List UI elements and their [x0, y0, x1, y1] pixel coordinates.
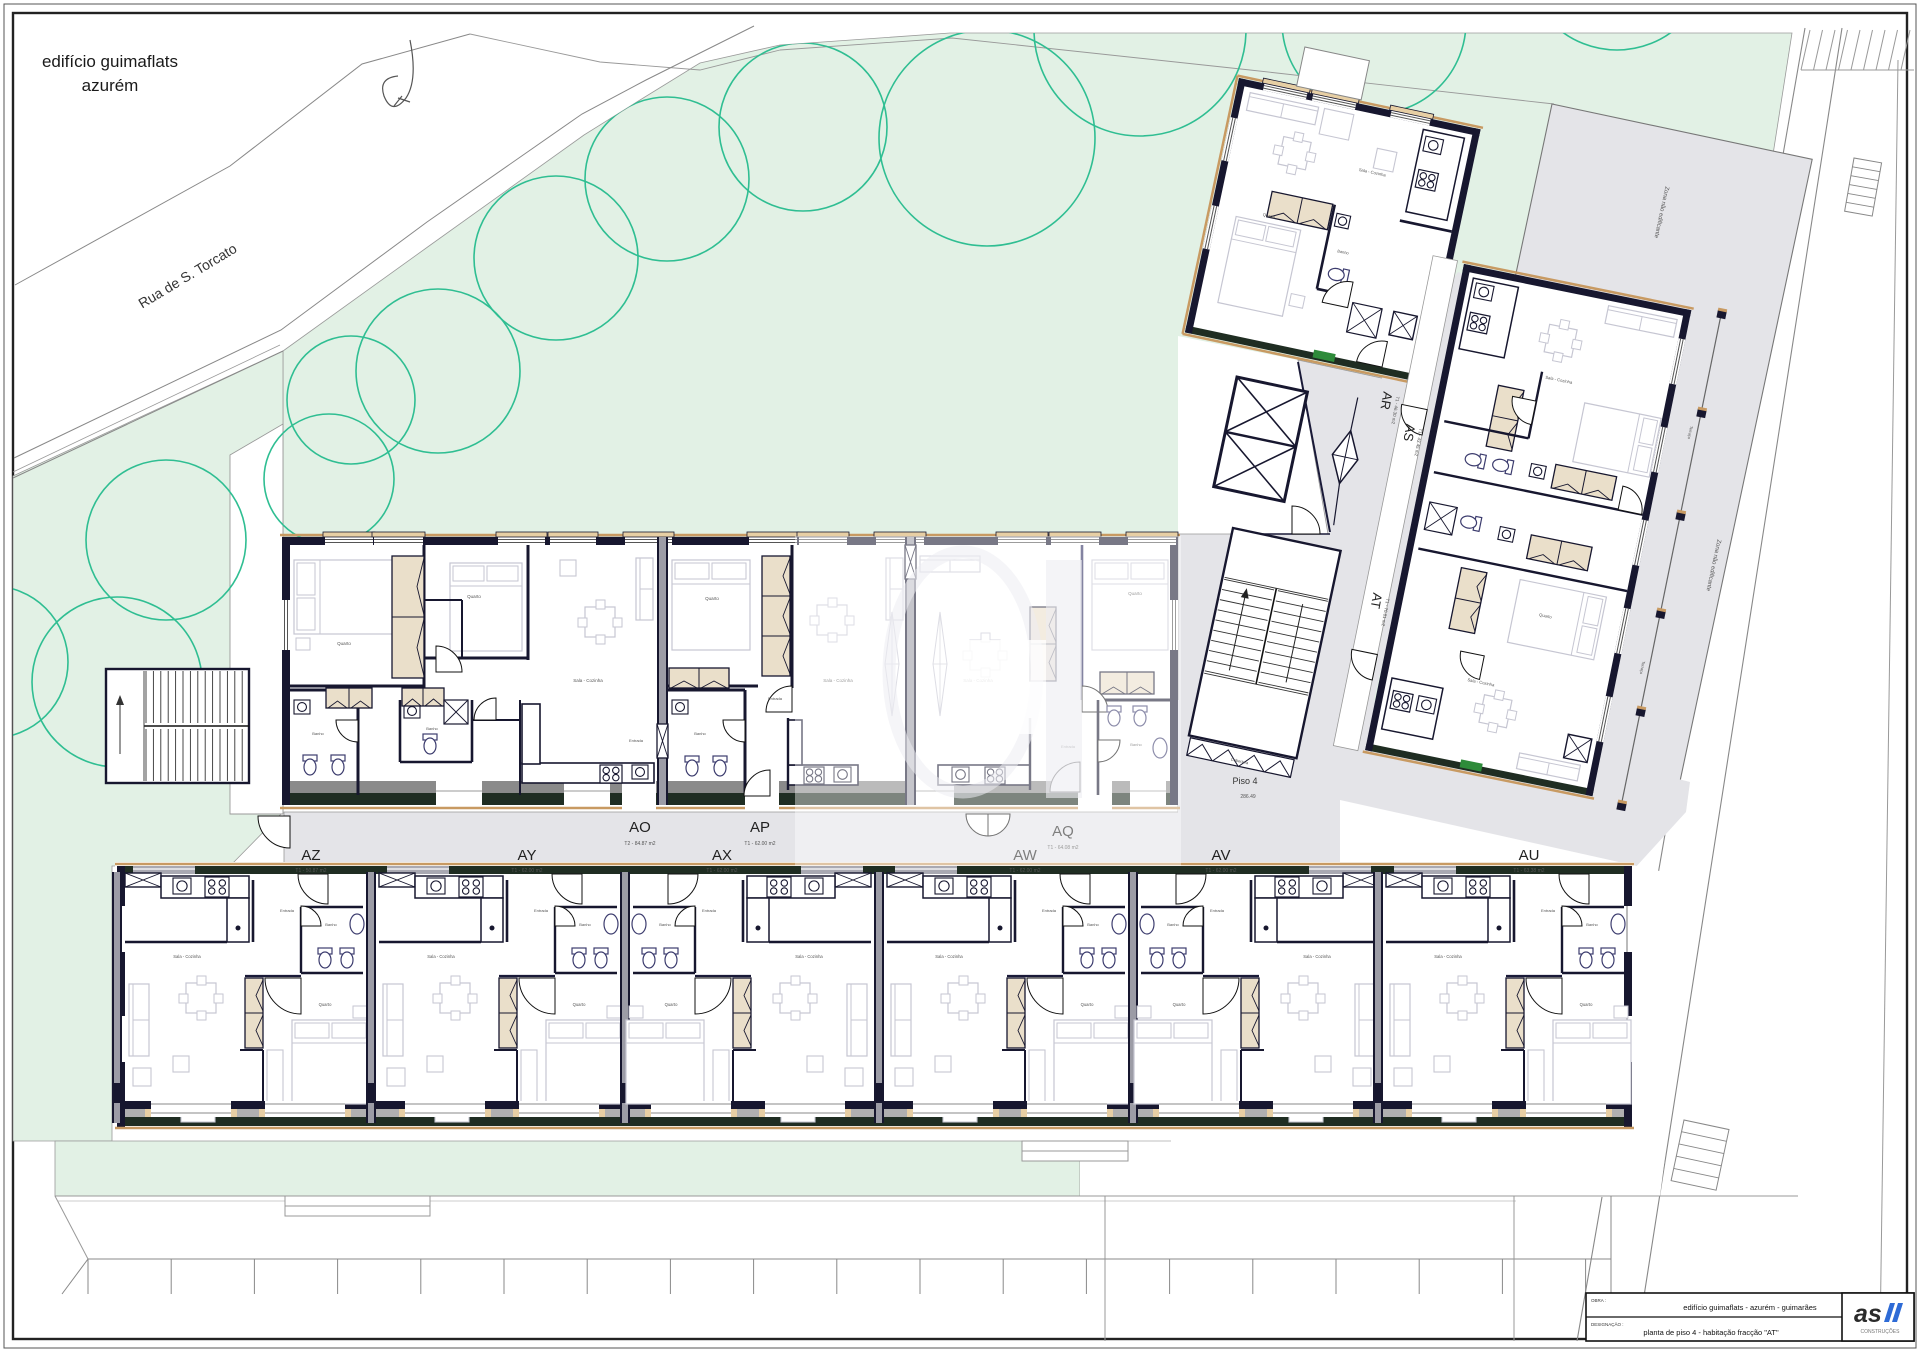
- svg-text:AV: AV: [1212, 847, 1231, 864]
- svg-text:Quarto: Quarto: [665, 1002, 678, 1007]
- svg-text:Sala - Cozinha: Sala - Cozinha: [427, 954, 455, 959]
- svg-text:Banho: Banho: [1167, 922, 1179, 927]
- svg-text:T1 - 63.38 m2: T1 - 63.38 m2: [1513, 868, 1544, 874]
- svg-text:AU: AU: [1519, 847, 1540, 864]
- svg-text:Entrada: Entrada: [768, 696, 783, 701]
- svg-text:AY: AY: [518, 847, 537, 864]
- svg-text:edifício guimaflats - azurém: edifício guimaflats - azurém - guimarães: [1683, 1303, 1817, 1312]
- svg-text:Entrada: Entrada: [629, 738, 644, 743]
- svg-text:Banho: Banho: [312, 731, 324, 736]
- svg-text:AR: AR: [1377, 391, 1395, 411]
- svg-text:T1 - 62.00 m2: T1 - 62.00 m2: [706, 868, 737, 874]
- svg-text:AT: AT: [1368, 592, 1385, 610]
- svg-text:AP: AP: [750, 819, 770, 836]
- svg-text:Entrada: Entrada: [702, 908, 717, 913]
- svg-text:Quarto: Quarto: [337, 641, 351, 646]
- svg-text:T2 - 84.87 m2: T2 - 84.87 m2: [624, 841, 655, 847]
- svg-text:Sala - Cozinha: Sala - Cozinha: [1434, 954, 1462, 959]
- svg-text:Quarto: Quarto: [467, 594, 481, 599]
- svg-text:AX: AX: [712, 847, 732, 864]
- svg-text:Entrada: Entrada: [534, 908, 549, 913]
- svg-text:edifício guimaflats: edifício guimaflats: [42, 52, 178, 71]
- svg-text:T1 - 62.00 m2: T1 - 62.00 m2: [1205, 868, 1236, 874]
- svg-text:Entrada: Entrada: [1541, 908, 1556, 913]
- svg-text:T1 - 62.00 m2: T1 - 62.00 m2: [1009, 868, 1040, 874]
- svg-text:AO: AO: [629, 819, 651, 836]
- svg-text:planta de piso 4 - habitação: planta de piso 4 - habitação fracção "AT…: [1643, 1328, 1779, 1337]
- svg-text:T1 - 50.87 m2: T1 - 50.87 m2: [295, 868, 326, 874]
- svg-text:Sala - Cozinha: Sala - Cozinha: [573, 678, 603, 683]
- svg-text:Quarto: Quarto: [573, 1002, 586, 1007]
- svg-text:OBRA :: OBRA :: [1591, 1298, 1606, 1303]
- svg-text:Banho: Banho: [694, 731, 706, 736]
- svg-text:Entrada: Entrada: [1042, 908, 1057, 913]
- svg-text:286.49: 286.49: [1240, 794, 1256, 800]
- svg-text:Quarto: Quarto: [319, 1002, 332, 1007]
- svg-text:AS: AS: [1400, 423, 1418, 443]
- svg-text:T1 - 62.00 m2: T1 - 62.00 m2: [511, 868, 542, 874]
- svg-text:Banho: Banho: [579, 922, 591, 927]
- svg-text:Quarto: Quarto: [1081, 1002, 1094, 1007]
- svg-text:AZ: AZ: [301, 847, 320, 864]
- svg-text:Sala - Cozinha: Sala - Cozinha: [795, 954, 823, 959]
- svg-text:Quarto: Quarto: [1173, 1002, 1186, 1007]
- svg-text:azurém: azurém: [82, 76, 139, 95]
- svg-text:Sala - Cozinha: Sala - Cozinha: [173, 954, 201, 959]
- svg-text:Banho: Banho: [325, 922, 337, 927]
- svg-text:Banho: Banho: [426, 726, 438, 731]
- svg-text:Banho: Banho: [1087, 922, 1099, 927]
- svg-text:Entrada: Entrada: [1210, 908, 1225, 913]
- svg-text:Entrada: Entrada: [280, 908, 295, 913]
- svg-text:Piso 4: Piso 4: [1232, 776, 1257, 786]
- svg-text:Quarto: Quarto: [1580, 1002, 1593, 1007]
- svg-text:as: as: [1854, 1300, 1882, 1328]
- svg-text:Banho: Banho: [1586, 922, 1598, 927]
- svg-text:DESIGNAÇÃO :: DESIGNAÇÃO :: [1591, 1321, 1624, 1327]
- svg-text:Quarto: Quarto: [705, 596, 719, 601]
- svg-text:Sala - Cozinha: Sala - Cozinha: [1303, 954, 1331, 959]
- svg-text:Sala - Cozinha: Sala - Cozinha: [935, 954, 963, 959]
- svg-text:Banho: Banho: [659, 922, 671, 927]
- svg-text:CONSTRUÇÕES: CONSTRUÇÕES: [1861, 1328, 1901, 1335]
- svg-text:T1 - 62.00 m2: T1 - 62.00 m2: [744, 841, 775, 847]
